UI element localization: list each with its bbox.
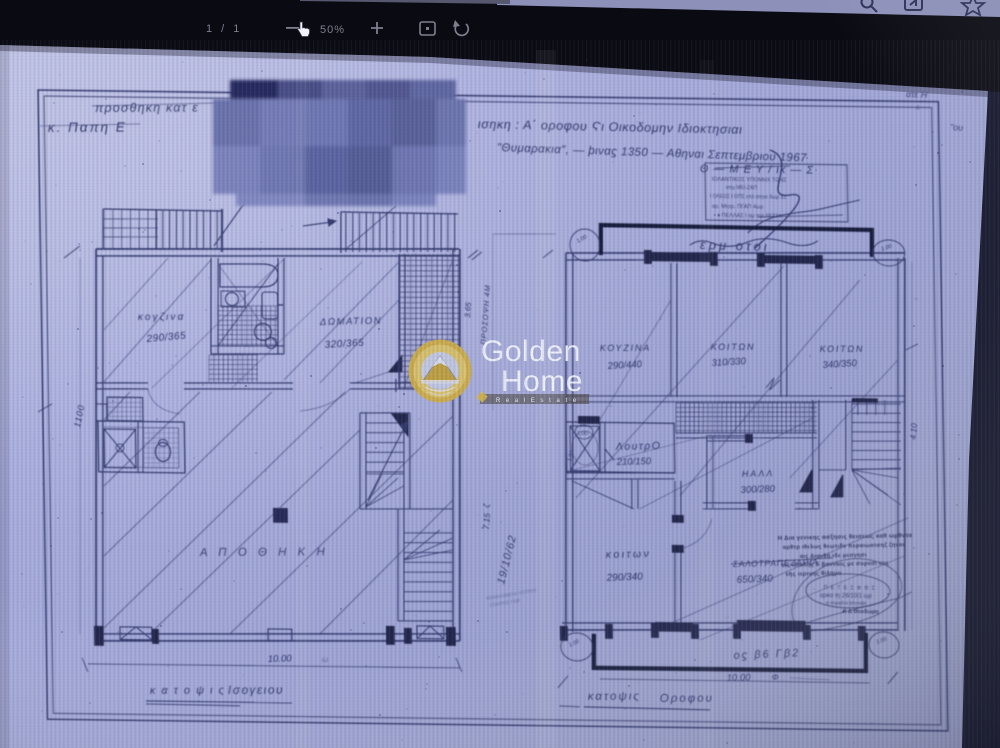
svg-text:1 / 1: 1 / 1 — [206, 23, 242, 35]
svg-text:50%: 50% — [320, 24, 345, 36]
